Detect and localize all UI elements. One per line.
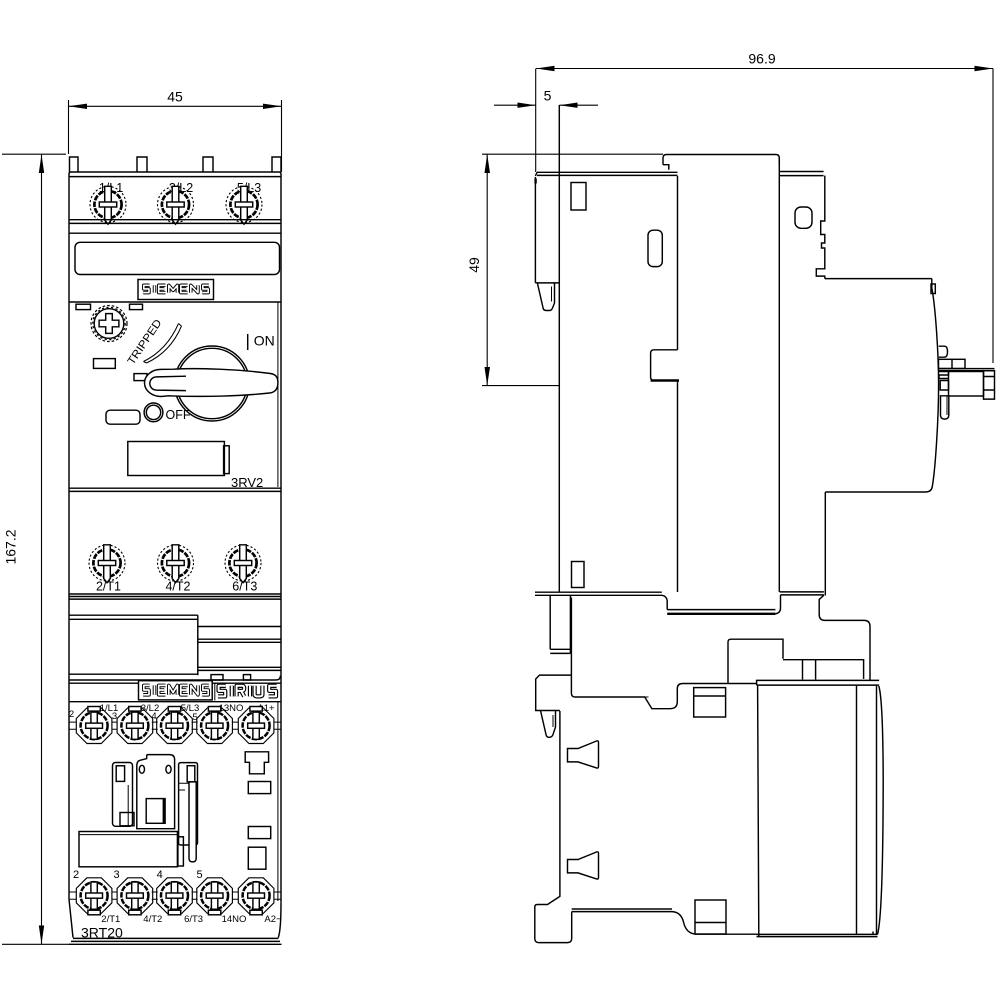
svg-text:14NO: 14NO <box>222 914 247 925</box>
svg-text:96.9: 96.9 <box>748 51 775 67</box>
svg-text:4/T2: 4/T2 <box>165 580 190 594</box>
svg-text:2/T1: 2/T1 <box>101 914 120 925</box>
svg-text:49: 49 <box>466 257 482 273</box>
svg-text:OFF: OFF <box>166 408 191 422</box>
svg-text:5: 5 <box>544 88 552 104</box>
svg-text:4/T2: 4/T2 <box>143 914 162 925</box>
svg-text:4: 4 <box>157 869 163 881</box>
svg-text:3: 3 <box>113 869 119 881</box>
svg-text:167.2: 167.2 <box>3 529 19 564</box>
svg-text:45: 45 <box>167 89 183 105</box>
svg-text:5: 5 <box>196 869 202 881</box>
svg-text:2: 2 <box>73 869 79 881</box>
svg-text:A2−: A2− <box>264 914 282 925</box>
svg-text:ON: ON <box>254 333 275 349</box>
svg-text:2/T1: 2/T1 <box>96 580 121 594</box>
svg-text:6/T3: 6/T3 <box>232 580 257 594</box>
svg-text:3: 3 <box>112 711 117 722</box>
svg-text:6/T3: 6/T3 <box>184 914 203 925</box>
svg-text:2: 2 <box>69 709 74 720</box>
